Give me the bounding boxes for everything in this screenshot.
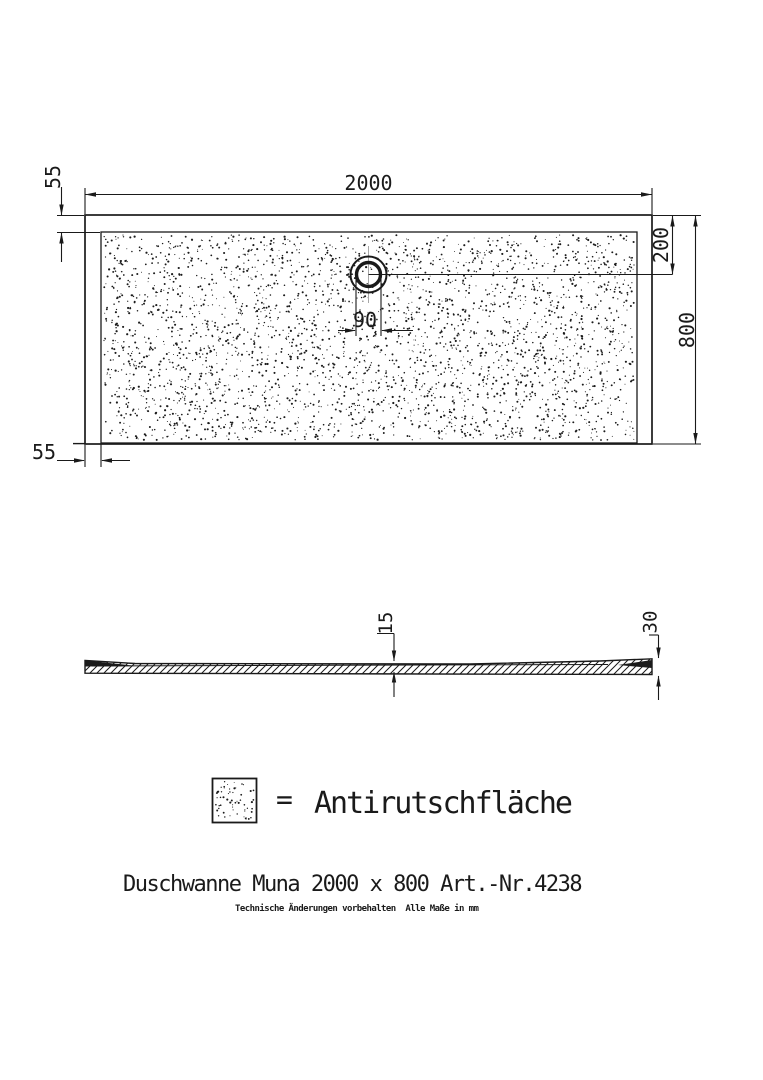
top-view: 2000 55 200 <box>32 165 701 467</box>
dim-thickness-center-label: 15 <box>375 612 397 635</box>
side-view: 15 30 <box>85 611 662 700</box>
dim-height-label: 800 <box>675 312 699 348</box>
dim-drain-diameter-label: 90 <box>353 308 377 332</box>
drain <box>351 246 673 303</box>
legend-swatch <box>213 779 257 823</box>
dim-border-left-label: 55 <box>32 440 56 464</box>
dim-width-label: 2000 <box>344 171 392 195</box>
antislip-swatch-dots <box>215 781 254 820</box>
side-profile <box>85 659 652 675</box>
dim-border-top-55 <box>57 187 100 262</box>
dim-drain-offset-label: 200 <box>649 227 673 263</box>
drawing-title: Duschwanne Muna 2000 x 800 Art.-Nr.4238 <box>123 872 581 897</box>
dim-border-left-55 <box>57 444 130 467</box>
legend-label: Antirutschfläche <box>314 786 571 821</box>
technical-drawing-page: 2000 55 200 <box>0 0 763 1080</box>
dim-border-top-label: 55 <box>41 165 65 189</box>
drawing-footnote: Technische Änderungen vorbehalten Alle M… <box>235 904 478 914</box>
legend-equals-sign: = <box>276 783 293 816</box>
antislip-dot-pattern <box>103 234 634 441</box>
dim-thickness-edge-label: 30 <box>640 611 662 634</box>
drawing-canvas: 2000 55 200 <box>0 0 763 1080</box>
